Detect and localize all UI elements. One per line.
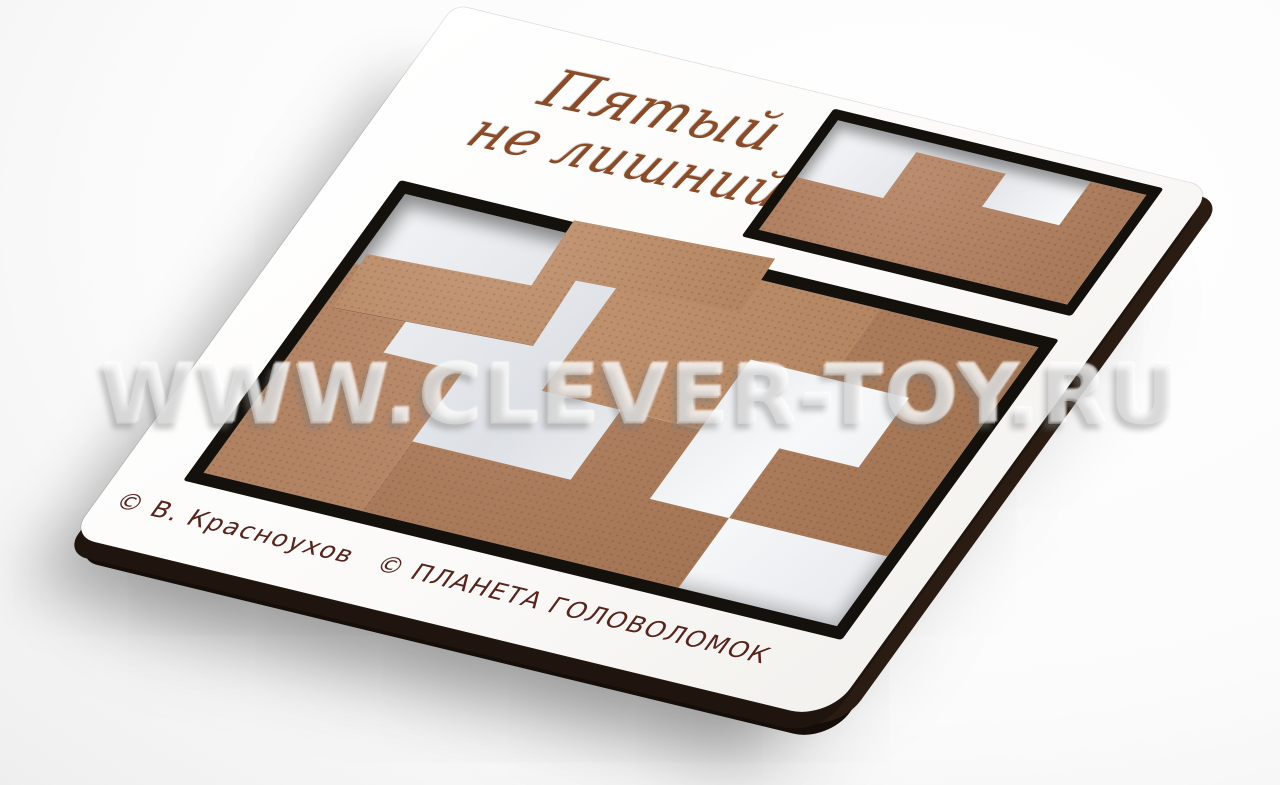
photo-backdrop: Пятый не лишний © В. Красноухов© ПЛАНЕТА… bbox=[0, 0, 1280, 785]
puzzle-board: Пятый не лишний © В. Красноухов© ПЛАНЕТА… bbox=[71, 5, 1212, 720]
parking-piece bbox=[759, 120, 1147, 304]
credits-gap bbox=[348, 563, 373, 569]
